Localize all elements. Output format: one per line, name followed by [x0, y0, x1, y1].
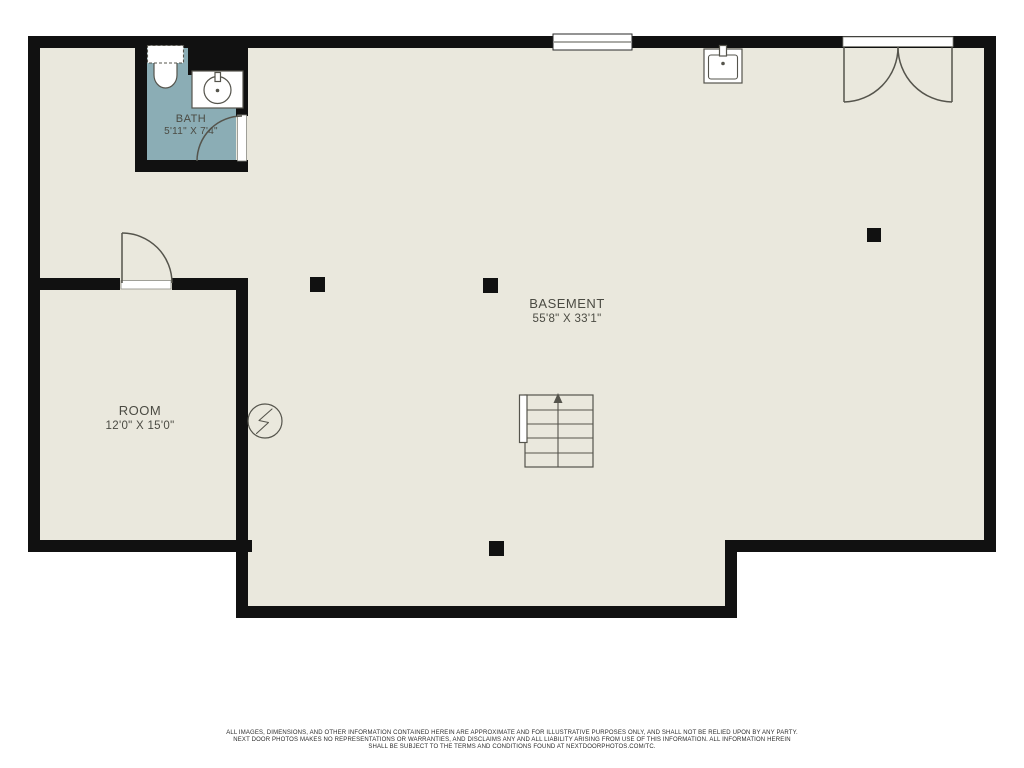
disclaimer-text: ALL IMAGES, DIMENSIONS, AND OTHER INFORM… [202, 730, 822, 751]
basement-floor-lower-extension [240, 540, 725, 606]
disclaimer-line: SHALL BE SUBJECT TO THE TERMS AND CONDIT… [202, 744, 822, 751]
floor-plan: BATH 5'11" X 7'4" ROOM 12'0" X 15'0" BAS… [0, 0, 1024, 768]
wall-segment [28, 36, 40, 552]
plumbing-chase [188, 36, 248, 75]
room-dimensions: 12'0" X 15'0" [106, 420, 175, 432]
wall-segment [135, 160, 248, 172]
wall-segment [725, 540, 996, 552]
wall-segment [28, 36, 996, 48]
wall-segment [28, 540, 252, 552]
room-label-bath: BATH 5'11" X 7'4" [164, 113, 218, 137]
wall-segment [28, 278, 120, 290]
support-post [867, 228, 881, 242]
wall-segment [236, 278, 248, 618]
room-dimensions: 55'8" X 33'1" [529, 313, 605, 325]
wall-segment [236, 606, 737, 618]
room-name: BASEMENT [529, 296, 605, 311]
room-dimensions: 5'11" X 7'4" [164, 126, 218, 137]
room-label-basement: BASEMENT 55'8" X 33'1" [529, 296, 605, 325]
support-post [310, 277, 325, 292]
support-post [483, 278, 498, 293]
room-label-room: ROOM 12'0" X 15'0" [106, 403, 175, 432]
wall-segment [984, 36, 996, 552]
disclaimer-line: NEXT DOOR PHOTOS MAKES NO REPRESENTATION… [202, 737, 822, 744]
support-post [489, 541, 504, 556]
disclaimer-line: ALL IMAGES, DIMENSIONS, AND OTHER INFORM… [202, 730, 822, 737]
wall-segment [135, 36, 147, 172]
room-name: BATH [164, 113, 218, 125]
room-name: ROOM [106, 403, 175, 418]
